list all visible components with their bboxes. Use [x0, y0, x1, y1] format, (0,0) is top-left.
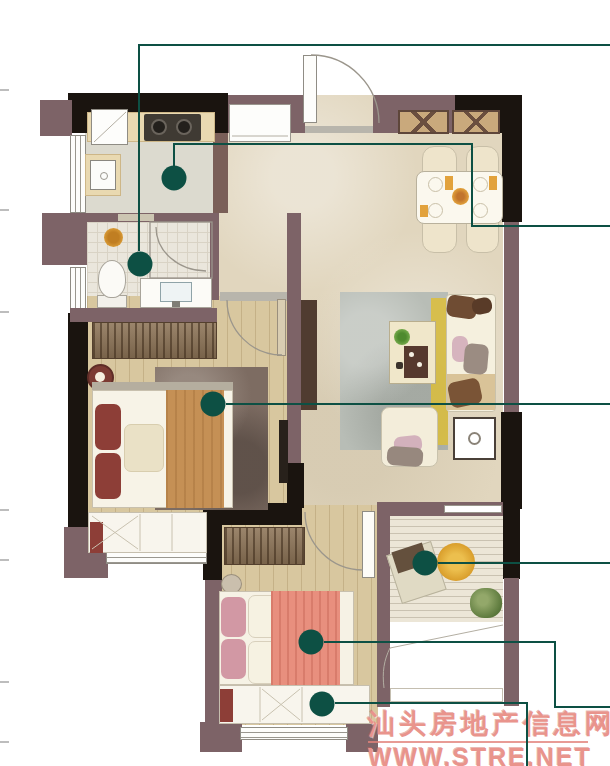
kitchen-callout-line	[174, 144, 610, 226]
callout-overlay	[0, 0, 610, 766]
bathroom-callout-dot	[128, 252, 153, 277]
bay-window-callout-line	[335, 703, 527, 766]
bay-window-callout-dot	[310, 692, 335, 717]
dimension-tick	[0, 741, 9, 743]
second-bedroom-callout-dot	[299, 630, 324, 655]
dimension-tick	[0, 509, 9, 511]
floor-plan: 汕头房地产信息网 WWW.STRE.NET	[0, 0, 610, 766]
dimension-tick	[0, 681, 9, 683]
dimension-tick	[0, 559, 9, 561]
dimension-tick	[0, 89, 9, 91]
bathroom-callout-line	[139, 45, 610, 251]
dimension-tick	[0, 209, 9, 211]
dimension-tick	[0, 311, 9, 313]
balcony-callout-dot	[413, 551, 438, 576]
master-bedroom-callout-dot	[201, 392, 226, 417]
second-bedroom-callout-line	[324, 642, 610, 707]
kitchen-callout-dot	[162, 166, 187, 191]
